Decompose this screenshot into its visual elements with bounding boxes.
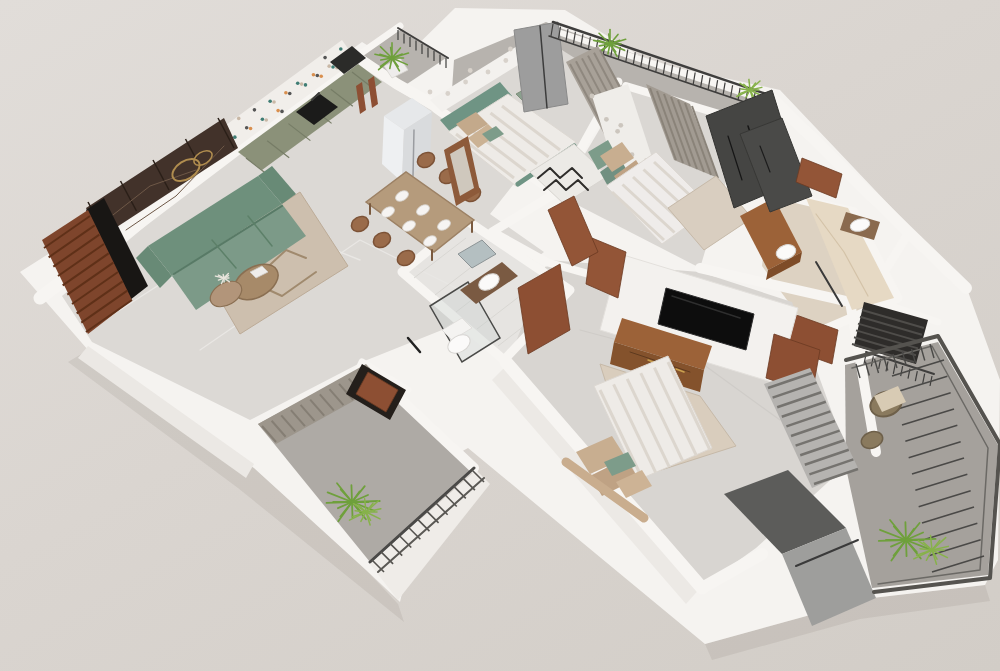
fridge-handle (413, 130, 414, 176)
18 (352, 501, 380, 502)
26 (261, 117, 265, 121)
9 (486, 70, 491, 75)
9 (503, 58, 508, 63)
9 (463, 80, 468, 85)
26 (249, 127, 253, 131)
18 (905, 522, 906, 540)
26 (272, 100, 276, 104)
18 (906, 540, 907, 556)
26 (233, 135, 237, 139)
26 (288, 92, 292, 96)
26 (296, 82, 300, 86)
26 (316, 74, 320, 78)
26 (300, 82, 304, 86)
9 (508, 47, 513, 52)
7 (615, 129, 620, 134)
26 (323, 56, 327, 60)
26 (237, 117, 241, 121)
7 (604, 117, 609, 122)
26 (319, 75, 323, 79)
9 (445, 91, 450, 96)
26 (245, 126, 249, 130)
18 (352, 502, 353, 517)
26 (268, 99, 272, 103)
26 (264, 118, 268, 122)
7 (590, 94, 595, 99)
26 (253, 108, 257, 112)
floor-plan-svg (0, 0, 1000, 671)
26 (304, 83, 308, 87)
9 (468, 68, 473, 73)
7 (618, 123, 623, 128)
9 (428, 90, 433, 95)
26 (280, 110, 284, 114)
26 (284, 91, 288, 95)
26 (339, 47, 343, 51)
18 (351, 485, 352, 502)
floor-plan-render (0, 0, 1000, 671)
26 (312, 73, 316, 77)
26 (276, 109, 280, 113)
26 (327, 64, 331, 68)
